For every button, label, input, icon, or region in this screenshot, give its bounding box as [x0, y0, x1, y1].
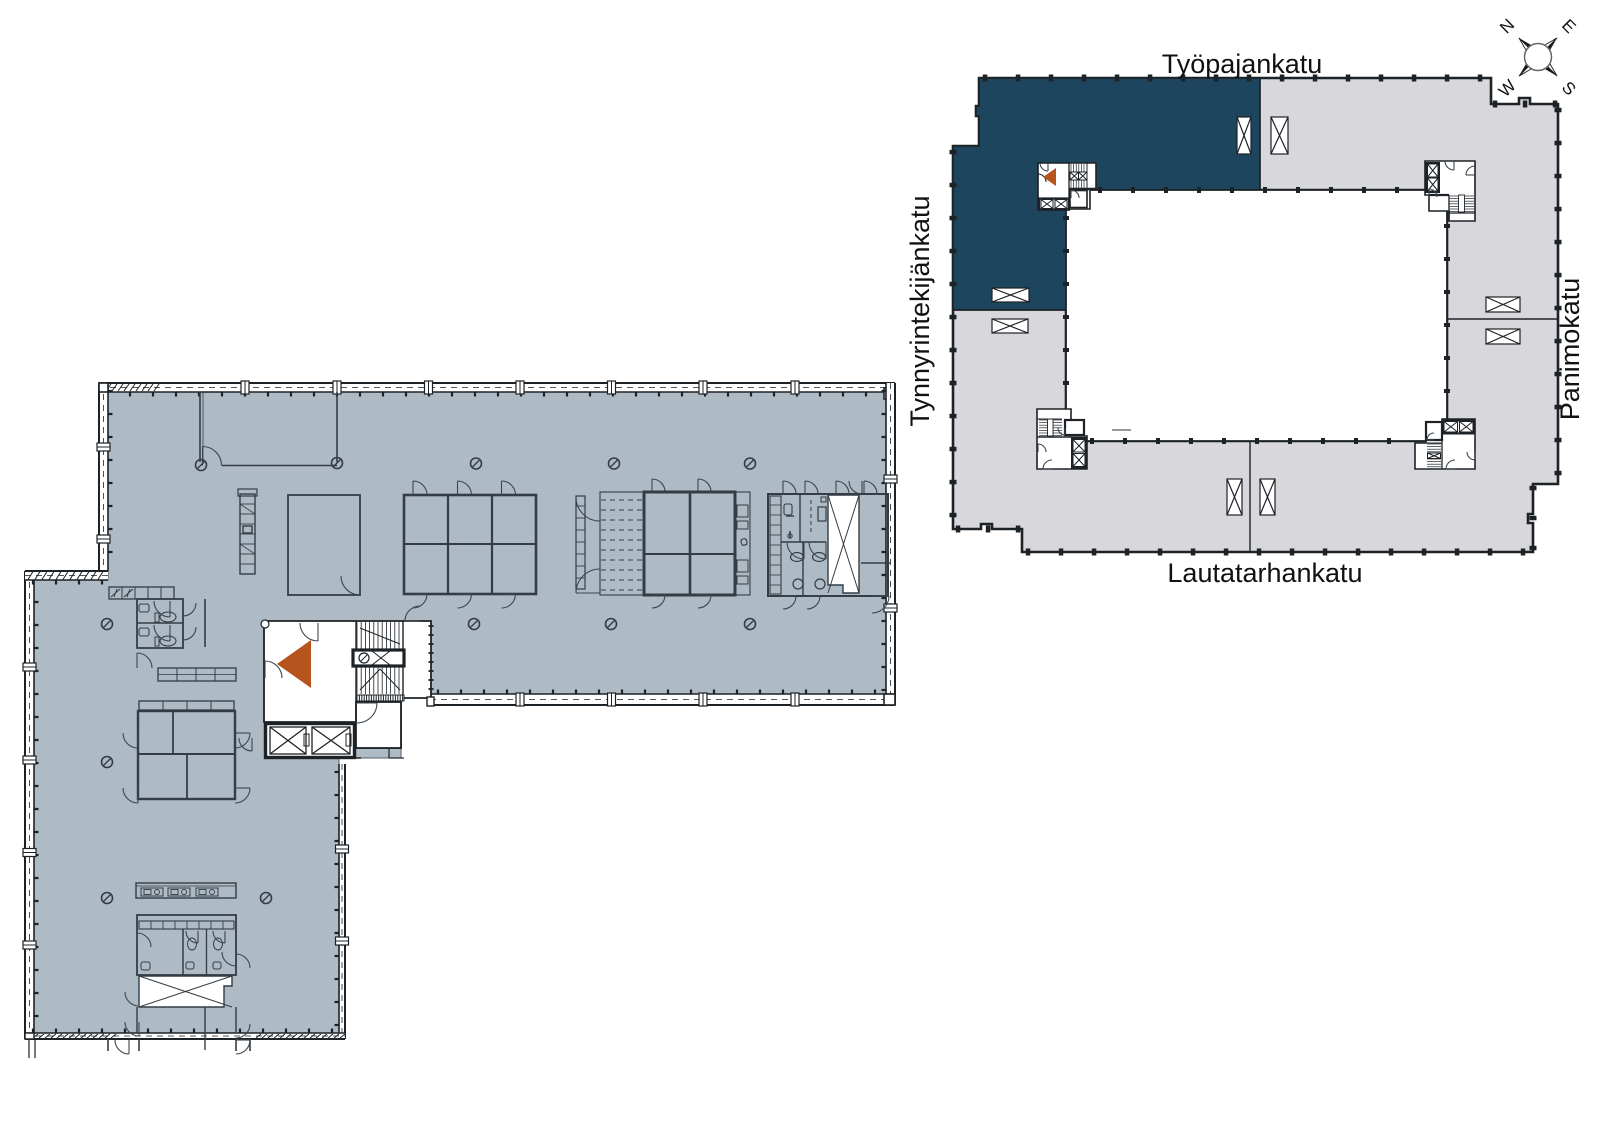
- svg-text:Työpajankatu: Työpajankatu: [1162, 49, 1323, 79]
- svg-text:Tynnyrintekijänkatu: Tynnyrintekijänkatu: [905, 195, 935, 426]
- svg-text:Panimokatu: Panimokatu: [1555, 278, 1585, 421]
- svg-text:Lautatarhankatu: Lautatarhankatu: [1167, 558, 1362, 588]
